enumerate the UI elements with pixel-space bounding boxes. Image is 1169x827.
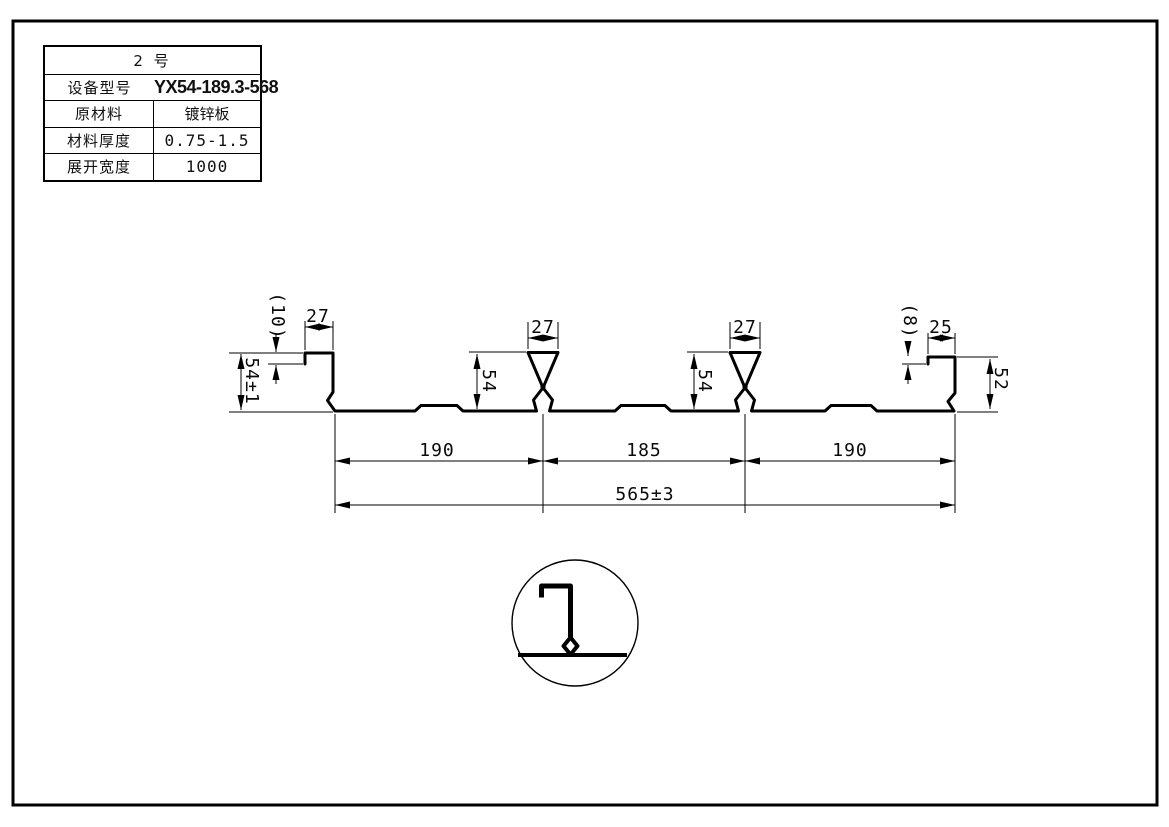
dim-pitch-left: 190	[419, 440, 455, 461]
dim-right-lip-width: 25	[929, 317, 953, 338]
detail-seam-lock-bead	[564, 638, 578, 655]
bottom-dimensions: 190 185 190 565±3	[335, 414, 955, 513]
dim-pitch-mid: 185	[626, 440, 662, 461]
dim-left-step: (10)	[267, 292, 288, 339]
dim-left-height: 54±1	[241, 357, 262, 404]
dim-rib1-height: 54	[478, 369, 499, 393]
spec-value-thickness: 0.75-1.5	[154, 131, 260, 150]
dim-left-lip-width: 27	[306, 306, 330, 327]
spec-value-material: 镀锌板	[154, 103, 260, 124]
machine-number: 2 号	[133, 50, 171, 71]
dim-rib1-width: 27	[531, 317, 555, 338]
detail-seam-hook	[542, 586, 571, 638]
dim-right-step: (8)	[899, 303, 920, 339]
spec-label-model: 设备型号	[45, 75, 154, 101]
panel-profile-outline	[305, 353, 955, 412]
seam-detail-view	[512, 560, 638, 686]
spec-row-model: 设备型号 YX54-189.3-568	[45, 74, 260, 101]
spec-label-coil-width: 展开宽度	[45, 154, 154, 180]
spec-label-thickness: 材料厚度	[45, 128, 154, 154]
spec-value-model: YX54-189.3-568	[154, 77, 281, 98]
detail-circle	[512, 560, 638, 686]
spec-label-material: 原材料	[45, 101, 154, 127]
spec-table: 2 号 设备型号 YX54-189.3-568 原材料 镀锌板 材料厚度 0.7…	[43, 45, 262, 182]
dim-overall-width: 565±3	[615, 484, 674, 505]
spec-row-thickness: 材料厚度 0.75-1.5	[45, 127, 260, 154]
dim-right-height: 52	[990, 367, 1011, 391]
spec-table-title-row: 2 号	[45, 47, 260, 74]
spec-value-coil-width: 1000	[154, 157, 260, 176]
dim-rib2-width: 27	[733, 317, 757, 338]
rib1-dimensions: 54 27	[469, 317, 558, 409]
dim-rib2-height: 54	[694, 369, 715, 393]
spec-row-material: 原材料 镀锌板	[45, 100, 260, 127]
drawing-sheet: 54±1 (10) 27 54 27 54	[0, 0, 1169, 827]
spec-row-coil-width: 展开宽度 1000	[45, 153, 260, 180]
dim-pitch-right: 190	[832, 440, 868, 461]
